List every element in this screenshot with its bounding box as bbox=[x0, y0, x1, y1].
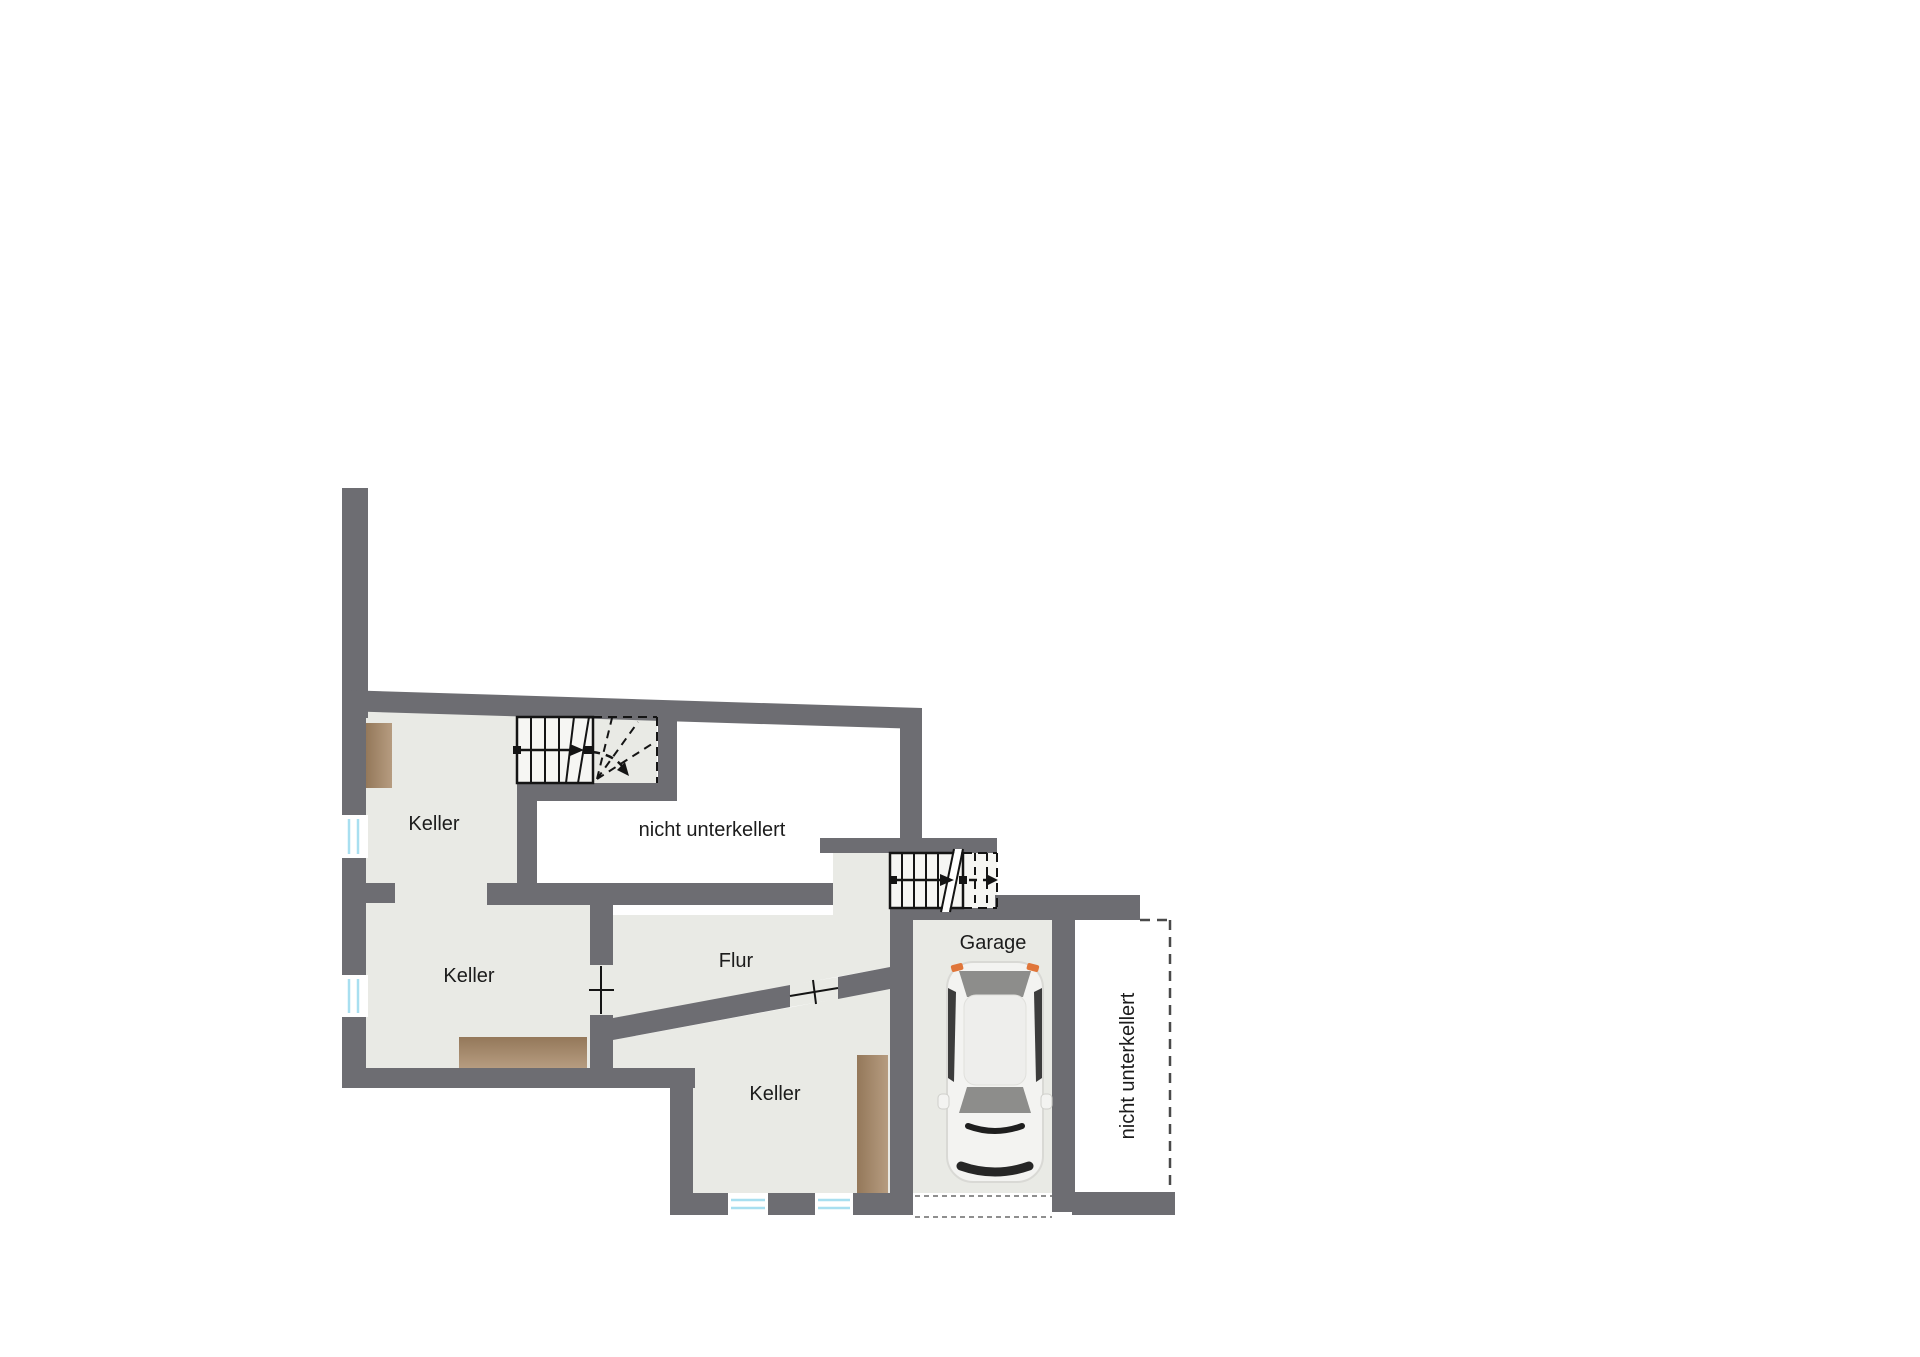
car-mirror-right bbox=[1041, 1094, 1052, 1109]
wall-flur-left-lower bbox=[590, 1015, 613, 1068]
car-windshield bbox=[959, 1087, 1031, 1113]
stair-run-node bbox=[584, 746, 592, 754]
wall-garage-top bbox=[995, 895, 1140, 920]
wood-shelf-keller-top bbox=[366, 723, 392, 788]
wall-rightstrip-bottom bbox=[1072, 1192, 1175, 1215]
wall-keller-bottom-bottom-a bbox=[693, 1193, 728, 1215]
wall-keller-bottom-bottom-c bbox=[853, 1193, 890, 1215]
stair-run-node bbox=[959, 876, 967, 884]
room-label-keller-bottom: Keller bbox=[749, 1083, 800, 1105]
wood-shelf-keller-bottom bbox=[857, 1055, 888, 1193]
stair-run-start-node bbox=[889, 876, 897, 884]
stair-nook-floor bbox=[833, 853, 890, 908]
wood-shelf-keller-middle bbox=[459, 1037, 587, 1068]
floor-plan-drawing: Keller Keller Keller Flur Garage nicht u… bbox=[0, 0, 1920, 1357]
room-label-keller-middle: Keller bbox=[443, 965, 494, 987]
car-roof bbox=[964, 995, 1026, 1085]
wall-garage-left bbox=[890, 920, 913, 1215]
wall-keller-middle-bottom bbox=[342, 1068, 695, 1088]
wall-upper-stairs-right bbox=[658, 717, 677, 801]
window-icon bbox=[340, 815, 368, 858]
wall-left-a bbox=[342, 711, 366, 815]
wall-keller-divider-left bbox=[342, 883, 395, 903]
wall-nobasement-right bbox=[900, 708, 922, 838]
wall-keller-divider-right bbox=[487, 883, 833, 905]
wall-left-b bbox=[342, 858, 366, 975]
room-label-flur: Flur bbox=[719, 950, 754, 972]
car-icon bbox=[938, 962, 1052, 1182]
wall-left-stub bbox=[342, 488, 368, 718]
room-label-keller-top: Keller bbox=[408, 813, 459, 835]
area-label-no-basement-right: nicht unterkellert bbox=[1117, 992, 1139, 1139]
window-icon bbox=[340, 975, 368, 1017]
no-basement-right-dashed-border bbox=[1140, 920, 1170, 1192]
room-label-garage: Garage bbox=[960, 932, 1027, 954]
wall-above-lower-stairs bbox=[820, 838, 997, 853]
stair-run-start-node bbox=[513, 746, 521, 754]
window-icon bbox=[815, 1193, 853, 1215]
area-label-no-basement-top: nicht unterkellert bbox=[639, 819, 786, 841]
wall-below-upper-stairs bbox=[517, 783, 677, 801]
opening-strip-flur-top bbox=[613, 905, 833, 915]
car-rear-window bbox=[959, 971, 1031, 997]
floor-plan-page: Keller Keller Keller Flur Garage nicht u… bbox=[0, 0, 1920, 1357]
wall-keller-bottom-left bbox=[670, 1088, 693, 1215]
wall-flur-left-upper bbox=[590, 903, 613, 965]
window-icon bbox=[728, 1193, 768, 1215]
wall-garage-right bbox=[1052, 920, 1075, 1212]
car-mirror-left bbox=[938, 1094, 949, 1109]
wall-keller-bottom-bottom-b bbox=[768, 1193, 815, 1215]
